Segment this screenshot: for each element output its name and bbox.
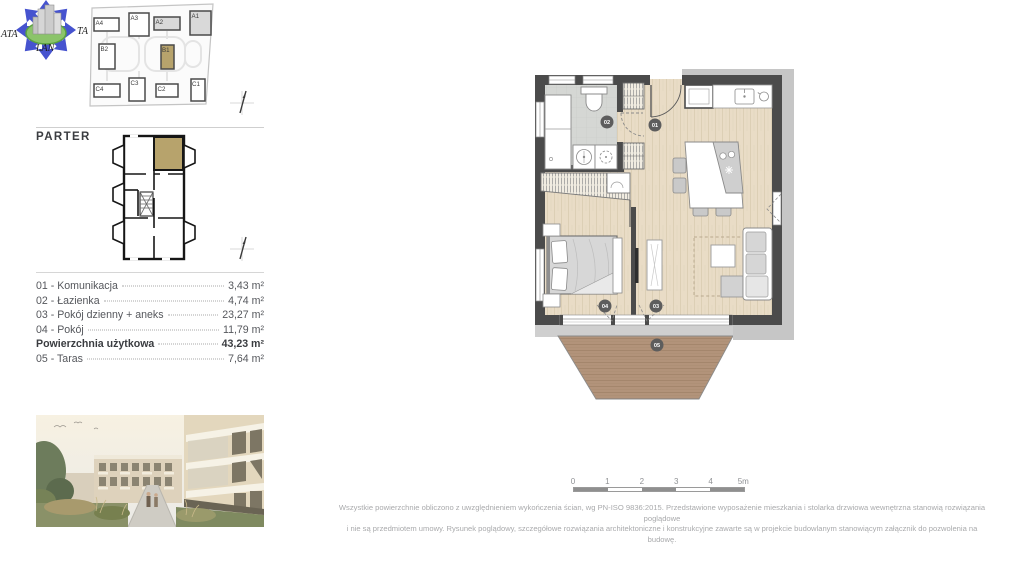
dresser <box>613 238 622 293</box>
total-area-value: 43,23 m² <box>222 338 264 350</box>
svg-text:02: 02 <box>604 120 610 126</box>
svg-text:B2: B2 <box>101 46 109 53</box>
dotted-leader <box>158 344 217 345</box>
room-row-05: 05 - Taras 7,64 m² <box>36 353 264 368</box>
site-plan: A4 A3 A2 A1 B2 B1 C4 C3 C2 C1 <box>85 1 217 109</box>
logo-text-left: ATA <box>0 29 19 40</box>
dotted-leader <box>87 358 224 359</box>
shower <box>545 95 571 169</box>
disclaimer-text: Wszystkie powierzchnie obliczono z uwzgl… <box>332 503 992 545</box>
room-label: 04 - Pokój <box>36 324 84 336</box>
floor-level-label: PARTER <box>36 131 91 143</box>
total-label: Powierzchnia użytkowa <box>36 338 154 350</box>
kitchen-sink-icon <box>735 89 754 104</box>
tv-screen <box>635 248 639 283</box>
svg-text:C2: C2 <box>158 86 166 93</box>
room-row-04: 04 - Pokój 11,79 m² <box>36 324 264 339</box>
room-label: 05 - Taras <box>36 353 83 365</box>
nightstand <box>543 224 560 236</box>
badge-living-room: 03 <box>650 300 663 313</box>
north-arrow-icon <box>228 88 256 116</box>
scale-tick: 4 <box>708 477 712 486</box>
scale-tick: 0 <box>571 477 575 486</box>
apartment-floor-plan: 01 02 03 04 05 <box>527 57 797 405</box>
nightstand <box>543 294 560 307</box>
room-area-value: 11,79 m² <box>223 324 264 336</box>
svg-text:03: 03 <box>653 304 659 310</box>
logo-text-bottom: LAN <box>35 43 56 54</box>
svg-text:C4: C4 <box>96 86 104 93</box>
floor-outline-mini <box>96 132 208 264</box>
badge-bedroom: 04 <box>599 300 612 313</box>
svg-text:04: 04 <box>602 304 609 310</box>
dotted-leader <box>88 329 219 330</box>
north-arrow-icon <box>228 234 256 262</box>
room-area-value: 4,74 m² <box>228 295 264 307</box>
scale-tick: 1 <box>605 477 609 486</box>
room-area-value: 7,64 m² <box>228 353 264 365</box>
svg-text:B1: B1 <box>162 47 170 54</box>
svg-text:01: 01 <box>652 123 658 129</box>
page-root: { "logo": {"left_text": "ATA", "right_te… <box>0 0 1024 563</box>
scale-bar-segments <box>573 487 745 492</box>
sofa <box>743 228 772 300</box>
logo-text-right: TA <box>77 26 89 37</box>
developer-logo-watermark: ATA TA LAN <box>0 0 100 64</box>
room-row-02: 02 - Łazienka 4,74 m² <box>36 295 264 310</box>
logo-buildings-icon <box>33 5 61 34</box>
bed <box>547 236 617 294</box>
room-row-03: 03 - Pokój dzienny + aneks 23,27 m² <box>36 309 264 324</box>
dotted-leader <box>104 300 224 301</box>
usable-area-total-row: Powierzchnia użytkowa 43,23 m² <box>36 338 264 353</box>
mini-stairs <box>140 192 153 216</box>
sink-icon <box>595 145 617 169</box>
terrace-glass-doors <box>560 315 732 325</box>
room-row-01: 01 - Komunikacja 3,43 m² <box>36 280 264 295</box>
svg-text:A1: A1 <box>192 13 200 20</box>
ottoman <box>721 276 743 297</box>
dotted-leader <box>122 286 224 287</box>
svg-text:C3: C3 <box>131 80 139 87</box>
coffee-table <box>711 245 735 267</box>
highlighted-unit-b1-mini <box>154 137 183 170</box>
room-label: 01 - Komunikacja <box>36 280 118 292</box>
room-area-list: 01 - Komunikacja 3,43 m² 02 - Łazienka 4… <box>36 272 264 368</box>
svg-text:C1: C1 <box>192 81 200 88</box>
room-label: 03 - Pokój dzienny + aneks <box>36 309 164 321</box>
scale-tick: 2 <box>640 477 644 486</box>
svg-text:A2: A2 <box>156 19 164 26</box>
dotted-leader <box>168 315 219 316</box>
disclaimer-line-1: Wszystkie powierzchnie obliczono z uwzgl… <box>332 503 992 524</box>
scale-tick: 3 <box>674 477 678 486</box>
svg-text:A3: A3 <box>131 15 139 22</box>
scale-bar: 0 1 2 3 4 5m <box>573 477 745 493</box>
room-area-value: 23,27 m² <box>222 309 264 321</box>
burner-icon <box>725 166 733 174</box>
badge-terrace: 05 <box>651 339 664 352</box>
room-label: 02 - Łazienka <box>36 295 100 307</box>
badge-bathroom: 02 <box>601 116 614 129</box>
room-area-value: 3,43 m² <box>228 280 264 292</box>
building-render-image <box>36 415 264 527</box>
disclaimer-line-2: i nie są przedmiotem umowy. Rysunek pogl… <box>332 524 992 545</box>
badge-hallway: 01 <box>649 119 662 132</box>
svg-text:05: 05 <box>654 343 660 349</box>
section-divider <box>36 127 264 128</box>
washing-machine-icon <box>573 145 595 169</box>
scale-tick: 5m <box>738 477 749 486</box>
